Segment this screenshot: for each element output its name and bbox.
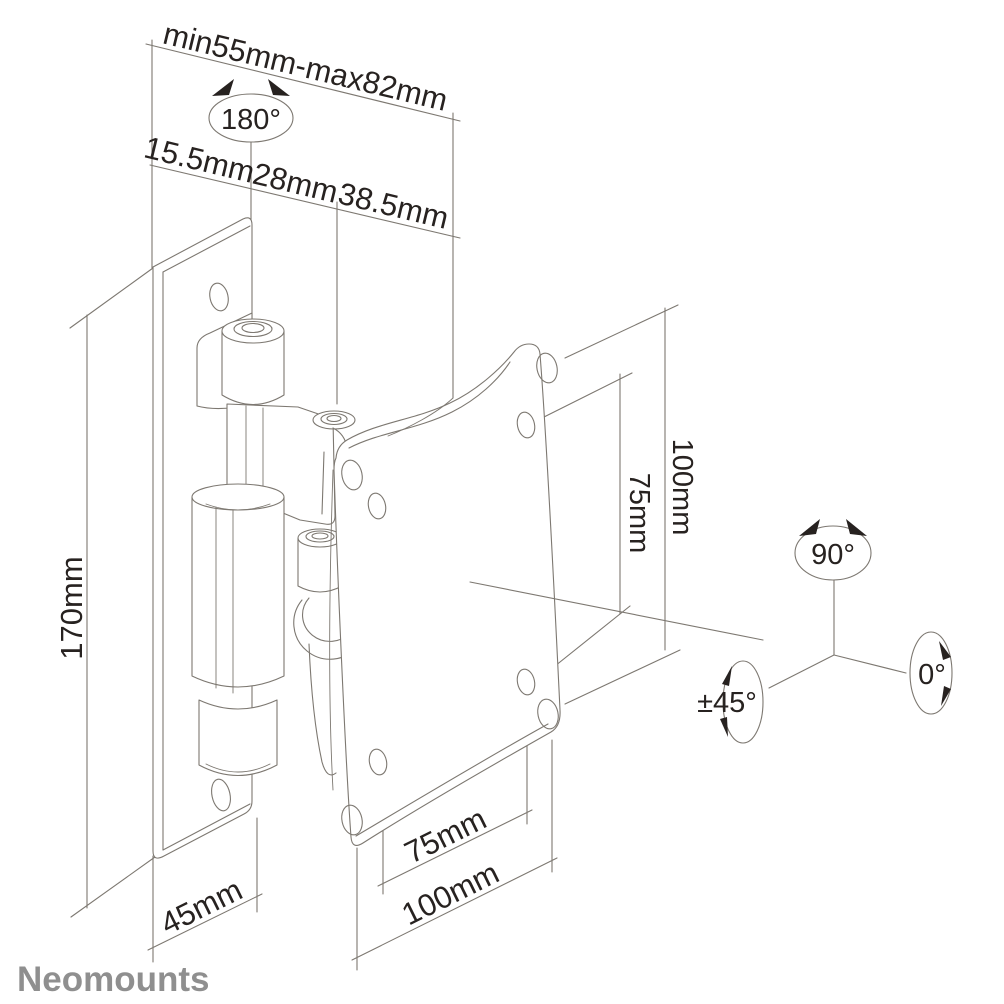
ext-line: [565, 305, 678, 358]
label-plate-width-45: 45mm: [155, 872, 248, 942]
label-rotate-90: 90°: [811, 539, 855, 571]
technical-drawing-page: min55mm-max82mm 180° 15.5mm 28mm 38.5mm …: [0, 0, 1004, 1004]
hinge-lower-block: [192, 497, 284, 687]
ext-line: [70, 268, 153, 328]
rotation-arrow-icon: [212, 79, 234, 96]
ext-line: [565, 650, 680, 704]
label-vesa-height-100: 100mm: [666, 439, 698, 536]
hinge-bottom-cylinder: [199, 700, 277, 776]
label-vesa-height-75: 75mm: [623, 473, 655, 554]
label-seg-28: 28mm: [249, 156, 341, 210]
label-rotate-0: 0°: [918, 659, 946, 691]
rotation-arrow-icon: [268, 79, 290, 96]
label-tilt-45: ±45°: [697, 687, 757, 719]
mount-diagram: min55mm-max82mm 180° 15.5mm 28mm 38.5mm …: [0, 0, 1004, 1004]
rotation-arrow-icon: [939, 641, 951, 660]
rotation-arrow-icon: [720, 717, 728, 737]
label-swivel-180: 180°: [221, 104, 281, 136]
rotation-arrow-icon: [722, 666, 732, 686]
rotation-arrow-icon: [846, 519, 867, 536]
rotation-arrow-icon: [799, 519, 820, 536]
ext-line: [542, 373, 632, 418]
label-seg-15-5: 15.5mm: [141, 130, 258, 190]
brand-logo: Neomounts: [17, 960, 210, 999]
vesa-plate: [330, 344, 561, 845]
label-depth-range: min55mm-max82mm: [160, 16, 451, 118]
hinge-assembly: [192, 313, 358, 776]
label-seg-38-5: 38.5mm: [335, 176, 452, 236]
ext-line: [71, 857, 155, 917]
label-plate-height-170: 170mm: [54, 556, 89, 659]
